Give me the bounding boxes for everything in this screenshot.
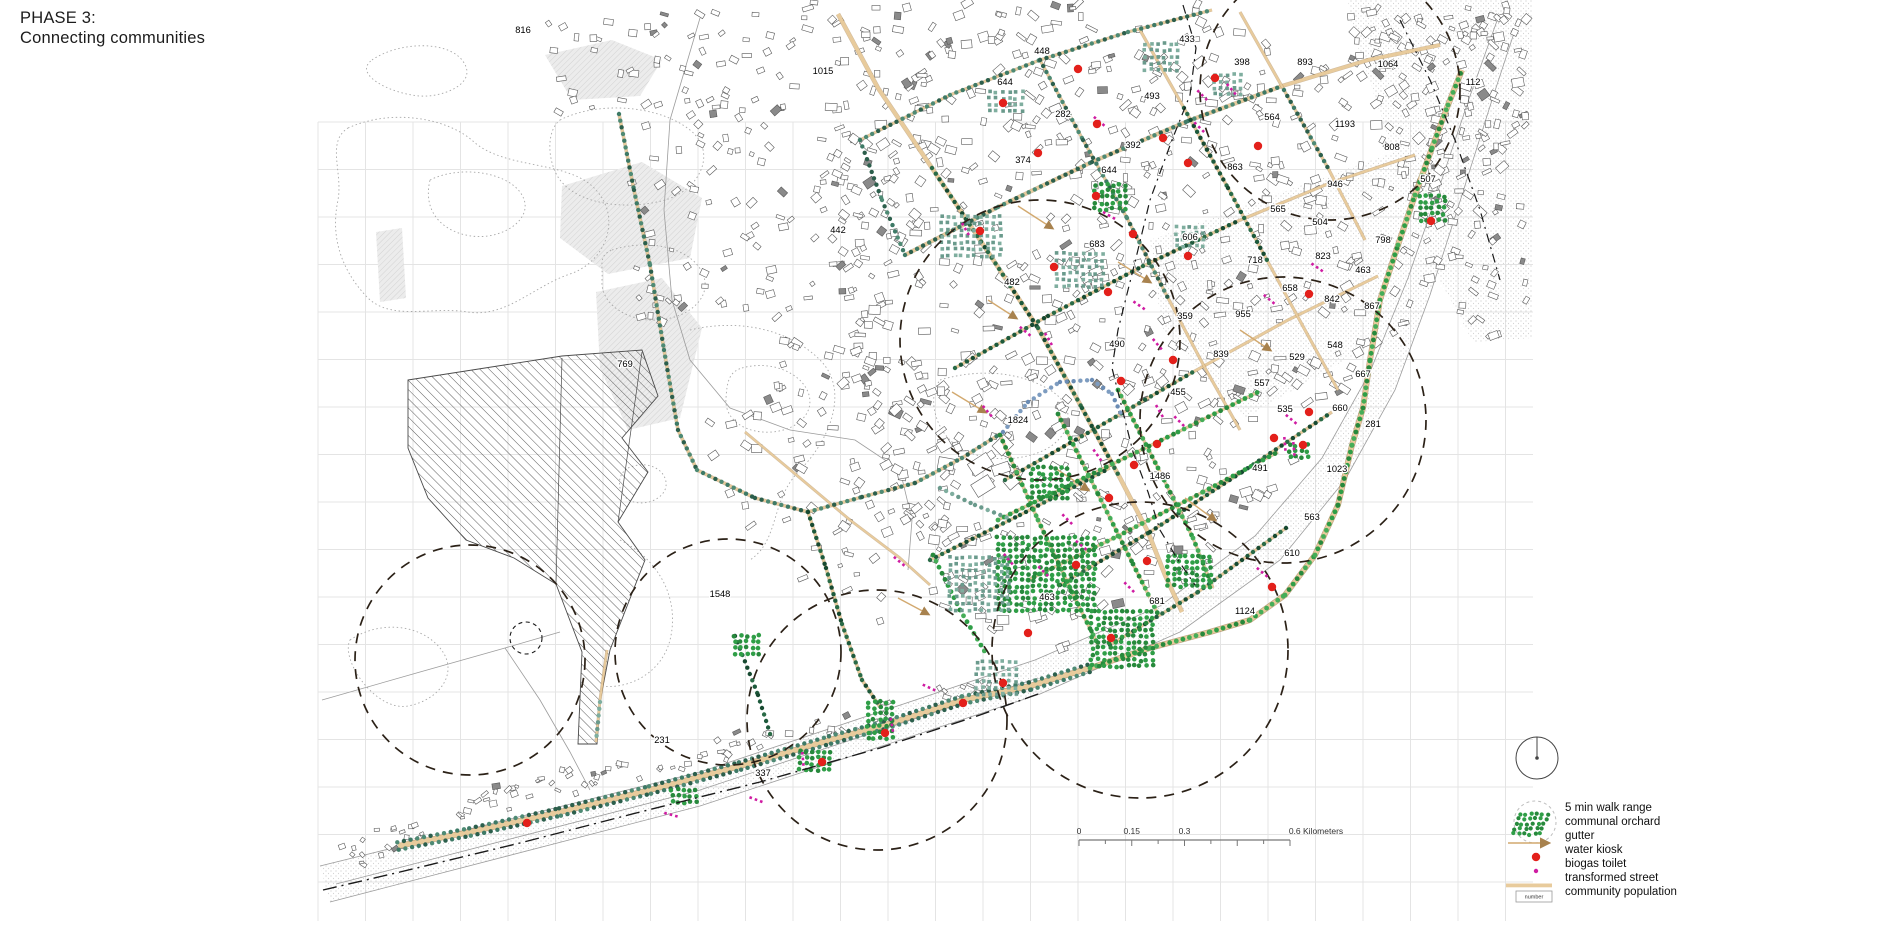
svg-text:548: 548 (1327, 340, 1343, 350)
svg-text:482: 482 (1004, 277, 1020, 287)
title-line-1: PHASE 3: (20, 8, 205, 28)
svg-text:490: 490 (1109, 339, 1125, 349)
legend-label-community-population: community population (1565, 885, 1677, 899)
svg-text:769: 769 (617, 359, 633, 369)
svg-text:893: 893 (1297, 57, 1313, 67)
svg-text:863: 863 (1227, 162, 1243, 172)
svg-text:442: 442 (830, 225, 846, 235)
svg-text:1824: 1824 (1008, 415, 1029, 425)
svg-text:374: 374 (1015, 155, 1031, 165)
legend-label-gutter: gutter (1565, 829, 1677, 843)
svg-text:504: 504 (1312, 217, 1328, 227)
page-title: PHASE 3: Connecting communities (20, 8, 205, 48)
svg-text:507: 507 (1420, 174, 1436, 184)
hatched-field (408, 350, 658, 744)
svg-text:867: 867 (1364, 301, 1380, 311)
svg-text:610: 610 (1284, 548, 1300, 558)
svg-text:282: 282 (1055, 109, 1071, 119)
svg-text:231: 231 (654, 735, 670, 745)
svg-text:0: 0 (1077, 826, 1082, 836)
svg-text:493: 493 (1144, 91, 1160, 101)
phase3-map-page: 8161015448433398893106411264449328256411… (0, 0, 1900, 927)
water-kiosk-swatch-icon (1532, 853, 1540, 861)
svg-text:816: 816 (515, 25, 531, 35)
legend-label-transformed-street: transformed street (1565, 871, 1677, 885)
communal-orchard-swatch-icon (1511, 812, 1550, 838)
svg-text:718: 718 (1247, 255, 1263, 265)
svg-text:667: 667 (1355, 369, 1371, 379)
svg-text:1548: 1548 (710, 589, 731, 599)
svg-text:0.6 Kilometers: 0.6 Kilometers (1289, 826, 1343, 836)
svg-text:658: 658 (1282, 283, 1298, 293)
legend-label-communal-orchard: communal orchard (1565, 815, 1677, 829)
svg-text:392: 392 (1125, 140, 1141, 150)
svg-text:433: 433 (1179, 34, 1195, 44)
scale-bar: 00.150.30.6 Kilometers (1077, 826, 1344, 846)
svg-text:808: 808 (1384, 142, 1400, 152)
svg-text:839: 839 (1213, 349, 1229, 359)
svg-text:681: 681 (1149, 596, 1165, 606)
svg-text:0.3: 0.3 (1179, 826, 1191, 836)
svg-text:491: 491 (1252, 463, 1268, 473)
svg-text:683: 683 (1089, 239, 1105, 249)
svg-text:823: 823 (1315, 251, 1331, 261)
svg-text:0.15: 0.15 (1123, 826, 1140, 836)
svg-text:281: 281 (1365, 419, 1381, 429)
walk-range-swatch-icon (1514, 801, 1556, 843)
svg-text:842: 842 (1324, 294, 1340, 304)
svg-text:660: 660 (1332, 403, 1348, 413)
svg-text:359: 359 (1177, 311, 1193, 321)
community-population-swatch-icon: number (1516, 891, 1552, 902)
map-canvas: 8161015448433398893106411264449328256411… (0, 0, 1900, 927)
svg-text:1193: 1193 (1335, 119, 1355, 129)
svg-text:337: 337 (755, 768, 771, 778)
legend-label-water-kiosk: water kiosk (1565, 843, 1677, 857)
svg-text:1124: 1124 (1235, 606, 1255, 616)
legend: number 5 min walk range communal orchard… (1500, 792, 1895, 924)
svg-text:463: 463 (1039, 592, 1055, 602)
north-arrow-icon (1516, 737, 1558, 779)
svg-text:1064: 1064 (1378, 59, 1399, 69)
svg-text:1486: 1486 (1150, 471, 1171, 481)
svg-text:564: 564 (1264, 112, 1280, 122)
svg-text:644: 644 (1101, 165, 1117, 175)
svg-text:557: 557 (1254, 378, 1270, 388)
svg-text:1015: 1015 (813, 66, 834, 76)
svg-text:1023: 1023 (1327, 464, 1348, 474)
svg-text:606: 606 (1182, 232, 1198, 242)
transformed-street-swatch-icon (1506, 884, 1552, 888)
title-line-2: Connecting communities (20, 28, 205, 48)
svg-text:798: 798 (1375, 235, 1391, 245)
legend-labels: 5 min walk range communal orchard gutter… (1565, 801, 1677, 899)
svg-text:565: 565 (1270, 204, 1286, 214)
svg-text:455: 455 (1170, 387, 1186, 397)
svg-text:112: 112 (1466, 77, 1481, 87)
svg-text:563: 563 (1304, 512, 1320, 522)
svg-text:946: 946 (1327, 179, 1343, 189)
svg-text:955: 955 (1235, 309, 1251, 319)
legend-label-biogas-toilet: biogas toilet (1565, 857, 1677, 871)
svg-text:398: 398 (1234, 57, 1250, 67)
biogas-toilet-swatch-icon (1534, 869, 1538, 873)
legend-label-walk-range: 5 min walk range (1565, 801, 1677, 815)
svg-text:463: 463 (1355, 265, 1371, 275)
svg-text:644: 644 (997, 77, 1013, 87)
svg-text:448: 448 (1034, 46, 1050, 56)
svg-text:535: 535 (1277, 404, 1293, 414)
svg-text:number: number (1525, 895, 1544, 901)
svg-text:529: 529 (1289, 352, 1305, 362)
